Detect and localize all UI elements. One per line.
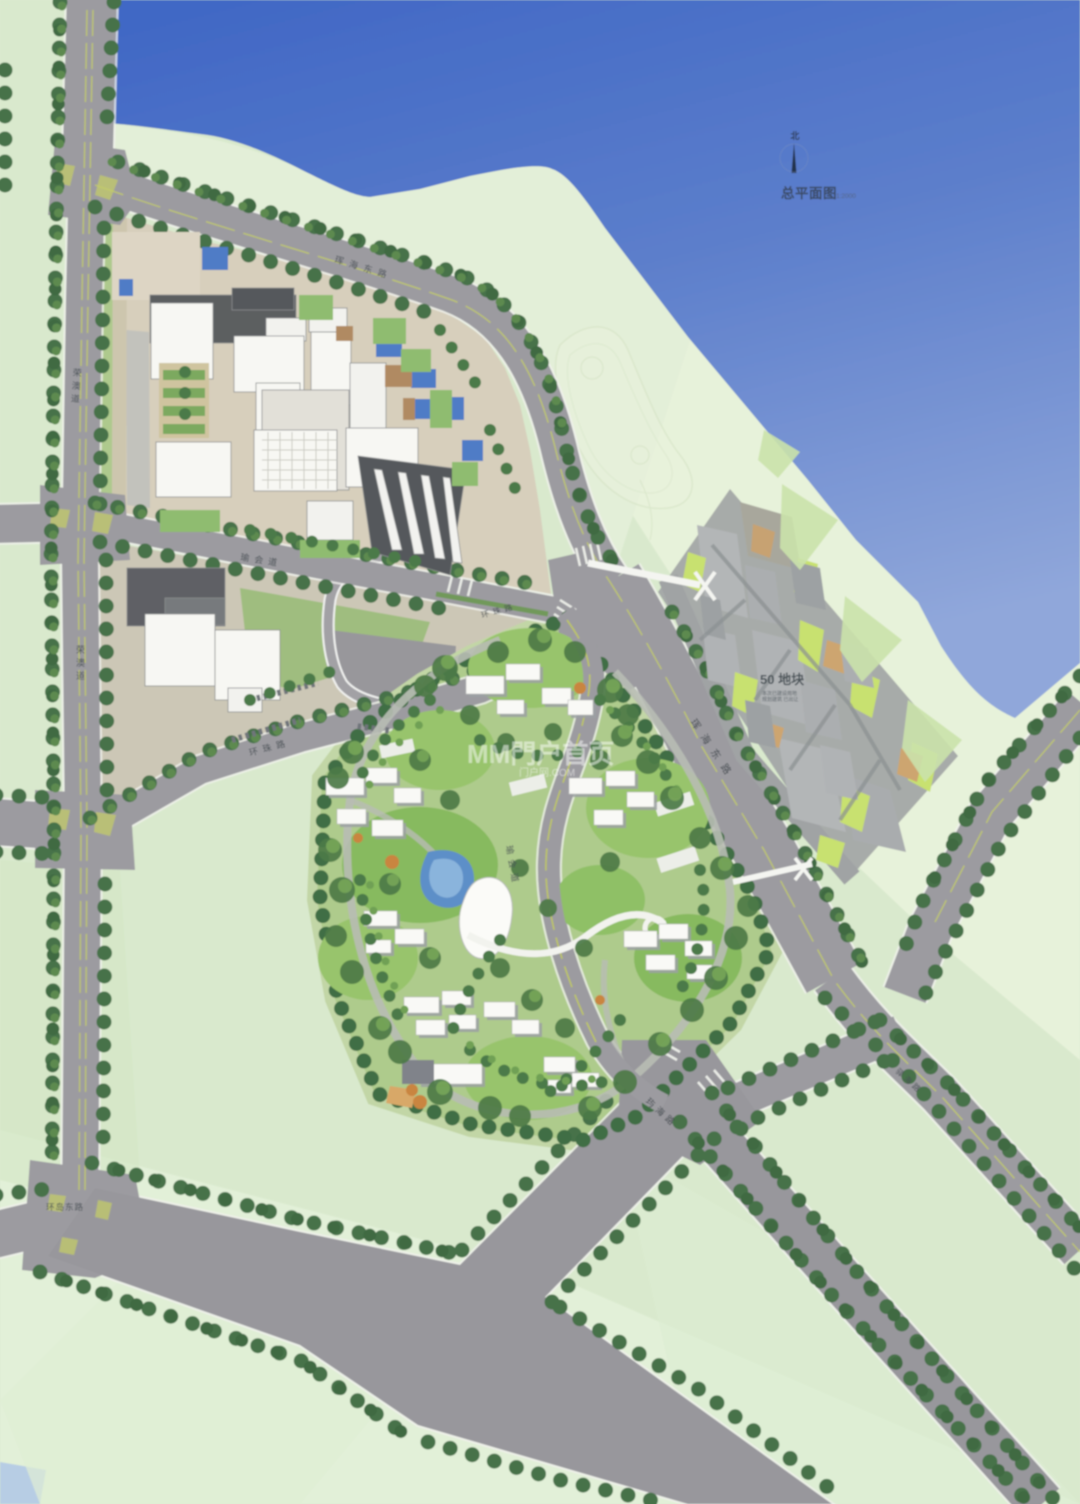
svg-text:总平面图: 总平面图	[781, 185, 837, 201]
svg-text:北: 北	[790, 130, 799, 141]
svg-text:荣澳道: 荣澳道	[75, 644, 85, 684]
svg-text:环岛东路: 环岛东路	[46, 1202, 84, 1212]
svg-text:门户网.COM: 门户网.COM	[519, 766, 575, 779]
svg-text:1:2000: 1:2000	[836, 193, 856, 200]
svg-text:本次已建设用地: 本次已建设用地	[762, 690, 797, 697]
svg-text:50 地块: 50 地块	[760, 672, 805, 687]
svg-text:MM門户首页: MM門户首页	[467, 739, 614, 769]
svg-text:规划建筑 已出让: 规划建筑 已出让	[762, 696, 798, 703]
